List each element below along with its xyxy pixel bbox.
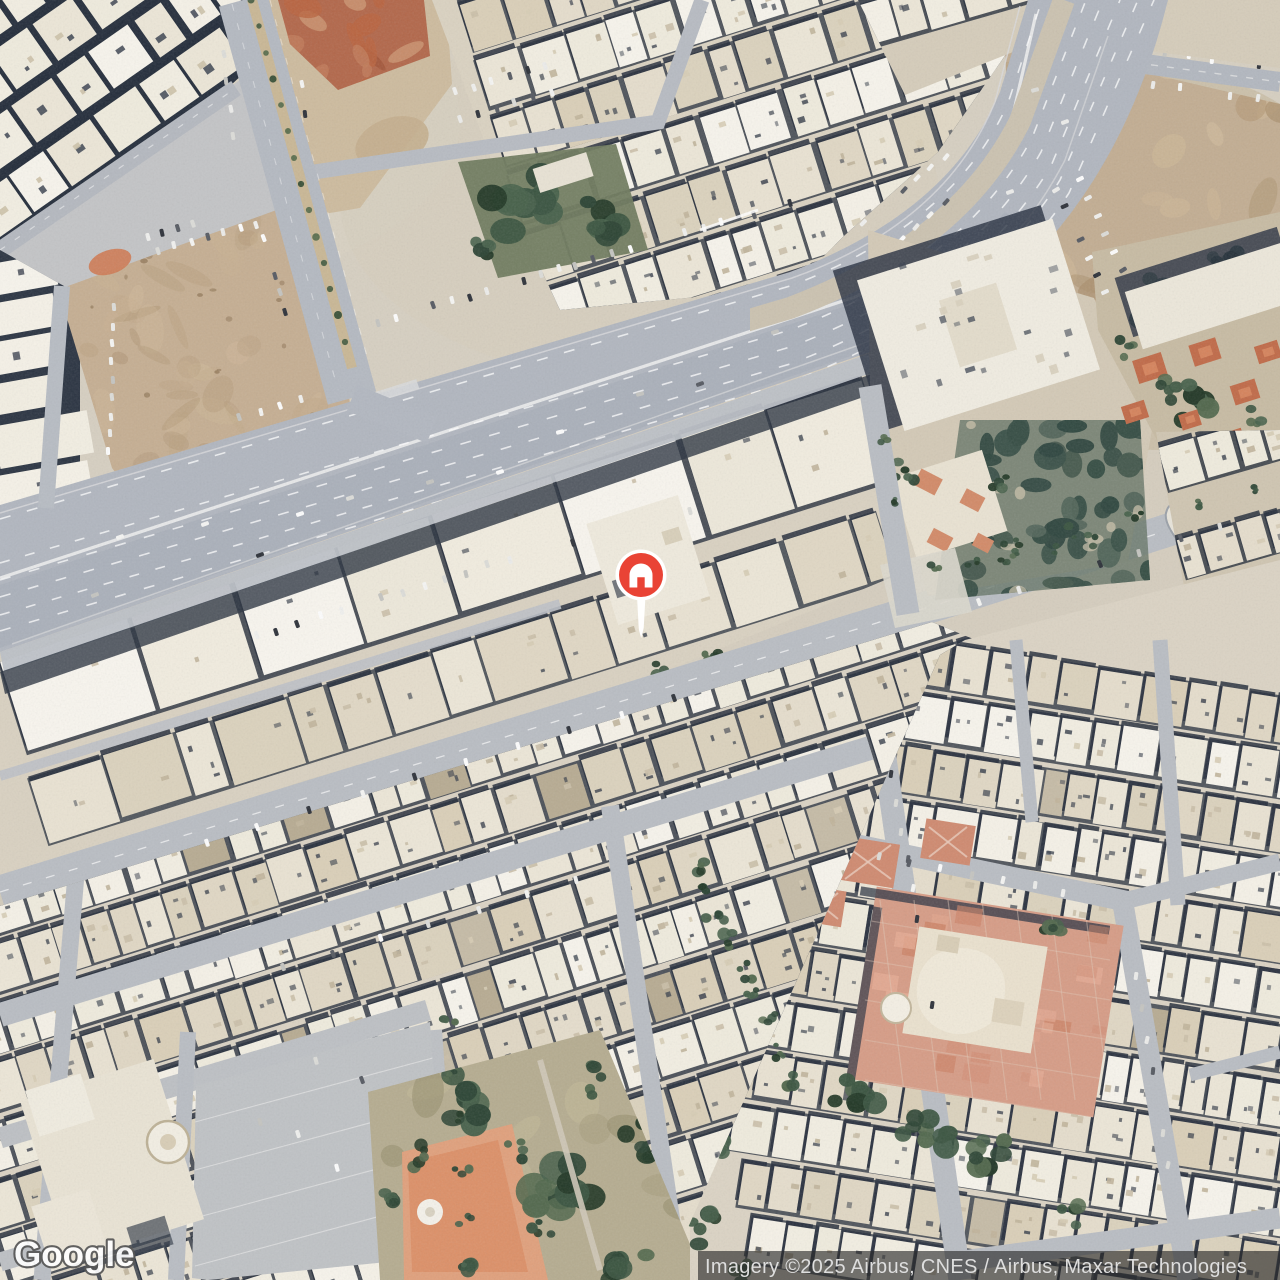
svg-text:Google: Google [14,1235,135,1274]
svg-text:Imagery ©2025 Airbus, CNES / A: Imagery ©2025 Airbus, CNES / Airbus, Max… [705,1256,1247,1278]
